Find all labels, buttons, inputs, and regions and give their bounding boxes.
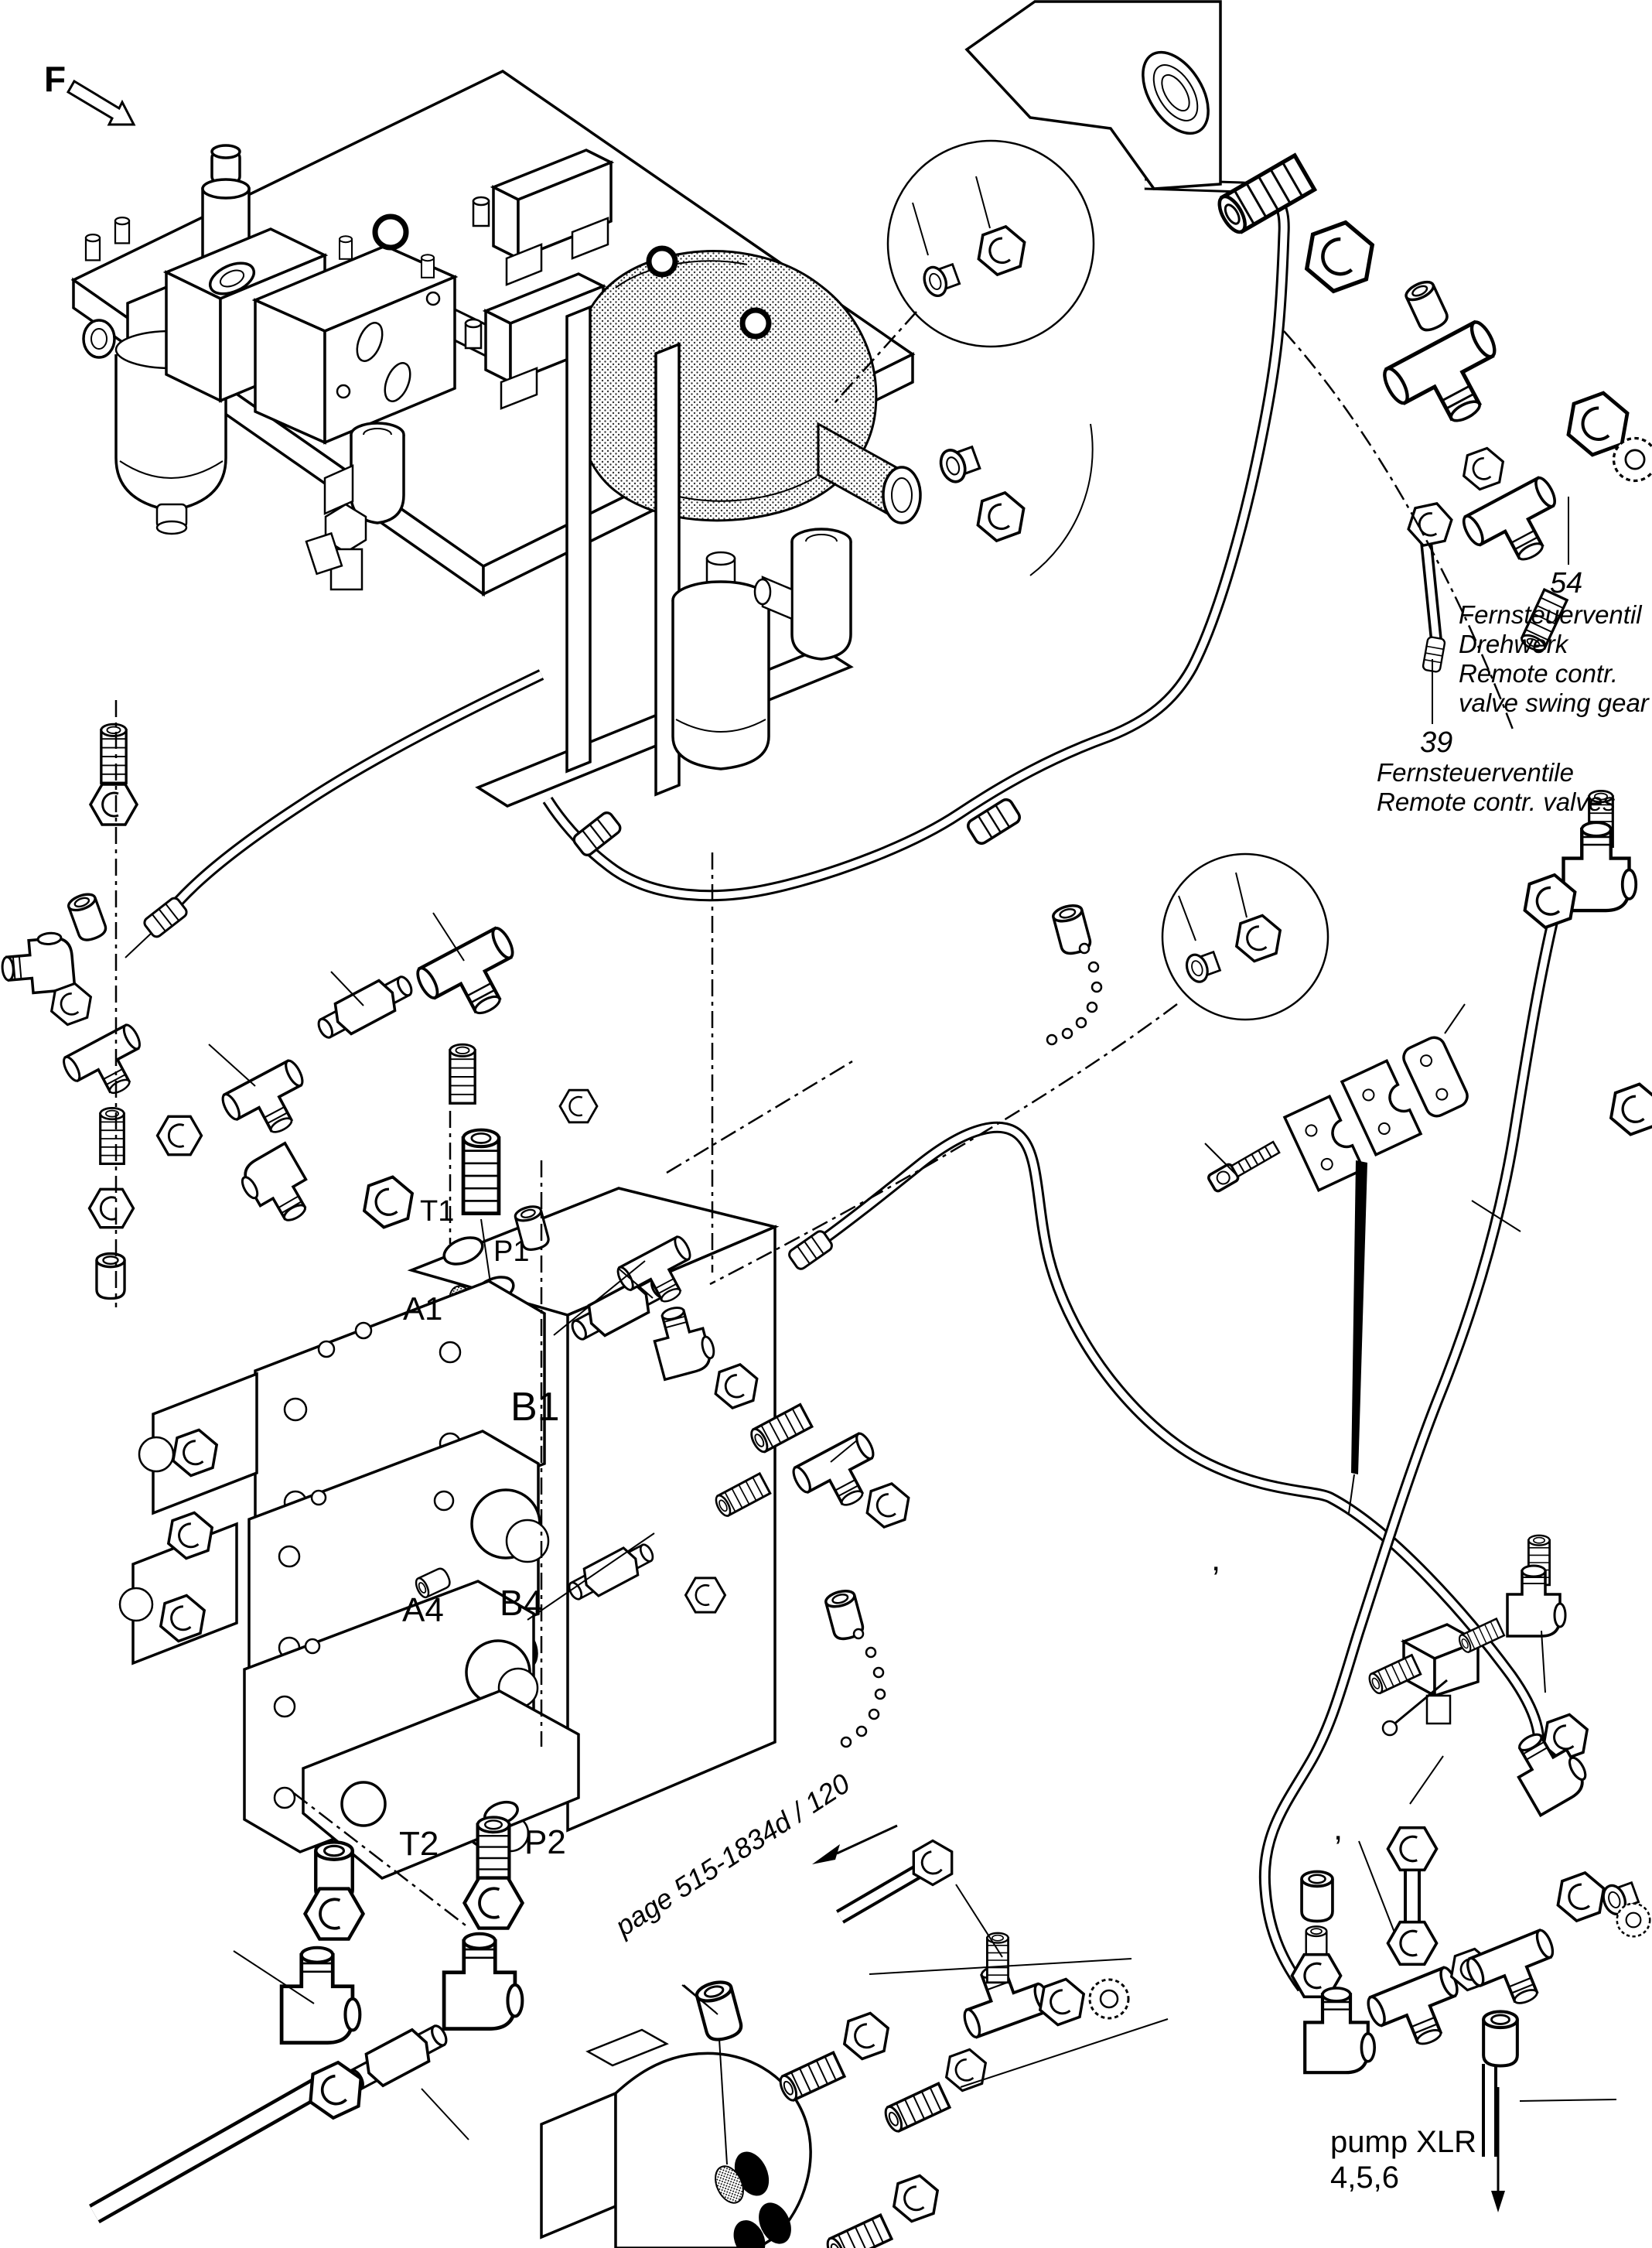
hex-nut bbox=[887, 2171, 944, 2225]
stud bbox=[115, 217, 129, 243]
flange-plug bbox=[937, 442, 981, 485]
item-number-54: 54 bbox=[1550, 567, 1582, 600]
elbow-fitting bbox=[1507, 1566, 1565, 1636]
stud bbox=[340, 236, 352, 259]
bottom-pump bbox=[541, 1979, 811, 2248]
stud bbox=[466, 319, 481, 348]
elbow-fitting bbox=[444, 1934, 522, 2029]
elbow-fitting bbox=[234, 1143, 319, 1233]
port-plug-nipple bbox=[463, 1130, 499, 1214]
hex-adapter bbox=[1296, 217, 1382, 297]
view-label-f: F bbox=[44, 59, 66, 99]
hydraulic-piping-diagram: F T1 P1 A1 B1 A4 B4 T2 P2 54 Fernsteuerv… bbox=[0, 0, 1652, 2248]
tee-fitting bbox=[220, 1058, 320, 1149]
tee-fitting bbox=[1465, 1929, 1568, 2017]
stud bbox=[473, 197, 489, 226]
hose-end-fitting bbox=[787, 1229, 834, 1271]
threaded-plug bbox=[1214, 155, 1314, 236]
hose-end-fitting bbox=[1422, 637, 1445, 672]
port-label-p2: P2 bbox=[524, 1823, 566, 1861]
item-39-name-en: Remote contr. valves bbox=[1377, 787, 1616, 816]
cap-nut bbox=[1404, 278, 1450, 333]
hose-end-fitting bbox=[142, 896, 189, 938]
hex-nut bbox=[971, 223, 1032, 279]
union-fitting bbox=[312, 969, 417, 1046]
hose-clamp-set bbox=[1207, 1034, 1471, 1513]
threaded-nipple bbox=[824, 2215, 892, 2248]
hex-nut bbox=[1405, 501, 1456, 548]
hex-nut bbox=[357, 1173, 420, 1232]
tee-fitting bbox=[61, 1023, 157, 1109]
hex-nut bbox=[940, 2046, 992, 2094]
hex-nut bbox=[1458, 445, 1510, 493]
hex-nut bbox=[838, 2009, 895, 2062]
hex-nut bbox=[560, 1090, 597, 1122]
hex-nut bbox=[1033, 1975, 1091, 2028]
item-54-name-de2: Drehwerk bbox=[1459, 630, 1569, 658]
page-ref-arrow bbox=[812, 1826, 897, 1864]
stud bbox=[422, 255, 434, 278]
hex-nut bbox=[1388, 1922, 1437, 1965]
threaded-nipple bbox=[101, 1108, 125, 1163]
hex-nut bbox=[1388, 1828, 1437, 1870]
item-number-39: 39 bbox=[1420, 726, 1452, 759]
cap-nut bbox=[67, 891, 108, 943]
elbow-fitting bbox=[282, 1948, 360, 2043]
callout-circle-1 bbox=[888, 141, 1094, 347]
hex-nut bbox=[158, 1116, 202, 1154]
threaded-nipple bbox=[450, 1044, 475, 1103]
flange-plug bbox=[1183, 948, 1222, 985]
elbow-fitting bbox=[1305, 1988, 1374, 2072]
pump-ref-line1: pump XLR bbox=[1330, 2125, 1476, 2159]
pump-ref-line2: 4,5,6 bbox=[1330, 2161, 1399, 2195]
stray-comma-2: , bbox=[1333, 1809, 1343, 1847]
view-direction-arrow bbox=[68, 81, 134, 125]
hex-nut bbox=[465, 1878, 523, 1929]
port-label-t2: T2 bbox=[399, 1825, 439, 1863]
mounting-strap bbox=[567, 307, 590, 771]
tee-fitting bbox=[414, 925, 534, 1033]
tee-fitting bbox=[1460, 475, 1575, 579]
hex-nut bbox=[305, 1889, 364, 1939]
tee-fitting bbox=[1380, 319, 1519, 444]
flange-plug bbox=[920, 260, 961, 299]
hex-nut bbox=[1603, 1080, 1652, 1139]
protection-cap-with-chain bbox=[824, 1588, 885, 1747]
threaded-nipple bbox=[882, 2083, 950, 2134]
hose-end-fitting bbox=[572, 811, 623, 858]
shutoff-valve bbox=[1367, 1619, 1504, 1735]
diagram-page: F T1 P1 A1 B1 A4 B4 T2 P2 54 Fernsteuerv… bbox=[0, 0, 1652, 2248]
threaded-nipple bbox=[101, 724, 126, 783]
cap-nut bbox=[97, 1254, 125, 1299]
stud bbox=[86, 234, 100, 260]
hex-nut bbox=[686, 1578, 725, 1612]
cap-nut bbox=[1302, 1871, 1333, 1921]
cap-nut bbox=[1483, 2011, 1517, 2065]
port-label-a1: A1 bbox=[403, 1290, 442, 1327]
hex-nut bbox=[971, 489, 1031, 545]
port-label-a4: A4 bbox=[402, 1591, 444, 1629]
threaded-nipple bbox=[777, 2052, 845, 2103]
serrated-washer bbox=[1617, 1904, 1650, 1937]
hex-nut bbox=[1230, 911, 1287, 965]
protection-cap-with-chain bbox=[1047, 903, 1101, 1044]
plug bbox=[695, 1979, 743, 2043]
serrated-washer bbox=[1090, 1980, 1128, 2018]
socket-head-bolt bbox=[1207, 1139, 1281, 1193]
port-label-b1: B1 bbox=[510, 1385, 560, 1430]
lifting-eye bbox=[375, 217, 406, 248]
elbow-fitting bbox=[0, 931, 75, 996]
stray-comma-1: , bbox=[1211, 1540, 1220, 1578]
lifting-eye bbox=[649, 248, 675, 275]
item-54-name-en: Remote contr. bbox=[1459, 659, 1618, 688]
item-54-name-de: Fernsteuerventil bbox=[1459, 600, 1643, 629]
callout-circle-2 bbox=[1162, 854, 1328, 1020]
hex-nut bbox=[1551, 1869, 1611, 1925]
hex-nut bbox=[90, 784, 137, 825]
hex-nut bbox=[861, 1480, 915, 1531]
hex-nut bbox=[90, 1189, 134, 1227]
port-label-p1: P1 bbox=[493, 1235, 529, 1268]
accumulator-canister bbox=[673, 552, 769, 769]
pointer-wedge bbox=[1351, 1160, 1367, 1474]
item-54-name-en2: valve swing gear bbox=[1459, 688, 1650, 717]
port-label-t1: T1 bbox=[420, 1195, 454, 1228]
lifting-eye bbox=[742, 310, 769, 337]
item-39-name-de: Fernsteuerventile bbox=[1377, 758, 1574, 787]
threaded-nipple bbox=[987, 1933, 1008, 1983]
top-right-port-block bbox=[967, 2, 1222, 189]
port-label-b4: B4 bbox=[500, 1583, 543, 1623]
